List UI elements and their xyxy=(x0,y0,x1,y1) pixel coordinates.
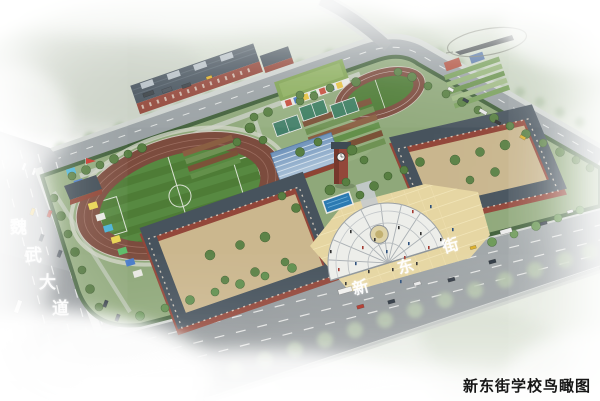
road-label-char: 魏 xyxy=(10,219,27,236)
aerial-rendering: 魏 武 大 道 新 东 街 新东街学校鸟瞰图 xyxy=(0,0,600,401)
road-label-char: 道 xyxy=(52,300,69,317)
road-label-char: 大 xyxy=(39,274,56,291)
caption: 新东街学校鸟瞰图 xyxy=(463,375,591,396)
road-label-char: 武 xyxy=(25,247,42,264)
campus-scene xyxy=(0,0,600,401)
